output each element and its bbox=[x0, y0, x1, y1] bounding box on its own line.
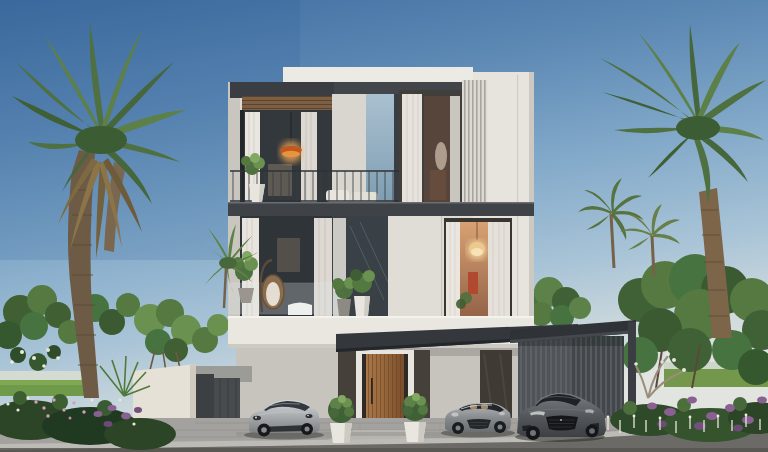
villa-rendering-scene bbox=[0, 0, 768, 452]
grille bbox=[467, 419, 491, 429]
interior-sculpture bbox=[435, 142, 447, 170]
curtain bbox=[301, 112, 317, 202]
interior-artwork bbox=[277, 238, 300, 272]
top-floor-right-window bbox=[399, 90, 462, 202]
interior-artwork bbox=[268, 164, 292, 196]
curtain bbox=[446, 222, 460, 330]
door-handle bbox=[371, 378, 373, 404]
curtain bbox=[450, 96, 460, 202]
scene-canvas bbox=[0, 0, 768, 452]
floor-slab bbox=[228, 202, 534, 216]
white-throw bbox=[288, 303, 312, 316]
headlight bbox=[306, 414, 313, 418]
grille bbox=[546, 416, 578, 431]
curtain bbox=[402, 94, 422, 202]
headlight bbox=[253, 416, 261, 420]
second-floor-right-window bbox=[444, 218, 512, 330]
headlight bbox=[452, 413, 459, 417]
headlight bbox=[499, 412, 505, 416]
vertical-fins bbox=[462, 80, 487, 202]
timber-soffit bbox=[242, 96, 334, 112]
sky-reflective-window bbox=[366, 94, 394, 202]
interior-red-artwork bbox=[468, 272, 478, 294]
